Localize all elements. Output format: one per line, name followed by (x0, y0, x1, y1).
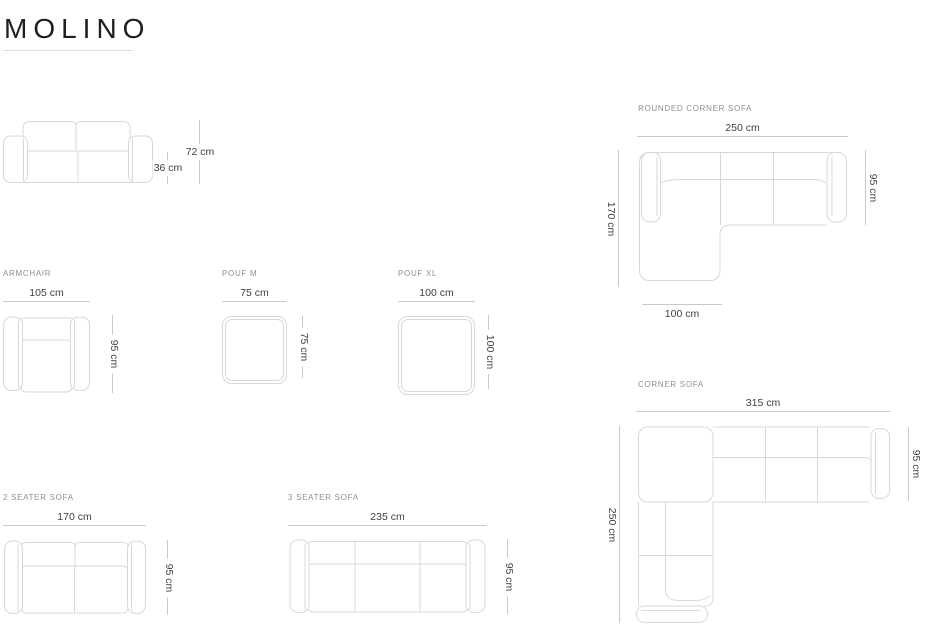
sofa-outline (640, 153, 836, 281)
back-cushion-left (20, 543, 76, 569)
dim-value: 100 cm (398, 287, 475, 299)
pouf-inner-edge (402, 320, 472, 392)
two-seater-drawing (3, 540, 147, 615)
backrest-seam (713, 458, 871, 462)
armrest-right (128, 541, 146, 614)
armrest-left (642, 153, 661, 223)
armrest-bottom (637, 606, 708, 623)
dim-pouf-m-width: 75 cm (222, 287, 287, 302)
dim-line (637, 136, 848, 137)
dim-two-seater-width: 170 cm (3, 511, 146, 526)
armrest-right (871, 429, 890, 499)
dim-value: 235 cm (288, 511, 487, 523)
armrest-left (5, 541, 23, 614)
section-label-corner-sofa: CORNER SOFA (638, 380, 704, 389)
page-title: MOLINO (4, 13, 150, 45)
dim-line (3, 525, 146, 526)
dim-armchair-width: 105 cm (3, 287, 90, 302)
pouf-outer-edge (223, 317, 287, 384)
dim-value: 75 cm (298, 328, 310, 367)
armrest-right (71, 317, 90, 391)
sofa-front-view-drawing (3, 115, 153, 185)
dim-value: 105 cm (3, 287, 90, 299)
dim-value: 36 cm (153, 160, 184, 176)
rounded-corner-sofa-drawing (637, 150, 848, 287)
back-cushion-right (75, 543, 130, 569)
corner-module (639, 427, 714, 502)
backrest-seam (661, 180, 826, 184)
dim-value: 72 cm (185, 144, 216, 160)
dim-value: 170 cm (3, 511, 146, 523)
dim-line (636, 411, 890, 412)
pouf-m-drawing (222, 316, 287, 384)
dim-value: 95 cm (163, 558, 175, 597)
section-label-armchair: ARMCHAIR (3, 269, 51, 278)
back-cushion-right (76, 122, 130, 153)
back-cushion-left (23, 122, 76, 153)
section-label-three-seater: 3 SEATER SOFA (288, 493, 359, 502)
armrest-right (466, 540, 485, 613)
dim-three-seater-width: 235 cm (288, 511, 487, 526)
section-label-two-seater: 2 SEATER SOFA (3, 493, 74, 502)
pouf-outer-edge (399, 317, 475, 395)
dim-value: 75 cm (222, 287, 287, 299)
dim-value: 250 cm (606, 507, 618, 541)
pouf-inner-edge (226, 320, 284, 381)
dim-line (3, 301, 90, 302)
section-label-pouf-xl: POUF XL (398, 269, 437, 278)
dim-rounded-corner-sofa-width: 250 cm (637, 122, 848, 137)
dim-value: 95 cm (108, 335, 120, 374)
armrest-left (4, 317, 23, 391)
dim-value: 100 cm (484, 330, 496, 374)
dim-line (865, 150, 866, 225)
dim-line (222, 301, 287, 302)
dim-value: 250 cm (637, 122, 848, 134)
chaise-back-seam (666, 502, 711, 601)
dim-pouf-xl-width: 100 cm (398, 287, 475, 302)
dim-value: 95 cm (503, 557, 515, 596)
section-label-pouf-m: POUF M (222, 269, 257, 278)
title-underline (3, 50, 133, 51)
dim-line (908, 427, 909, 501)
dim-value: 95 cm (867, 173, 879, 202)
dim-value: 170 cm (605, 201, 617, 235)
three-seater-drawing (289, 539, 486, 614)
dim-corner-sofa-width: 315 cm (636, 397, 890, 412)
dim-value: 100 cm (642, 308, 722, 320)
dim-line (619, 426, 620, 623)
dim-value: 95 cm (910, 450, 922, 479)
dim-line (398, 301, 475, 302)
armrest-left (290, 540, 309, 613)
section-label-rounded-corner-sofa: ROUNDED CORNER SOFA (638, 104, 752, 113)
armrest-right (827, 153, 847, 223)
corner-sofa-drawing (636, 426, 890, 623)
pouf-xl-drawing (398, 316, 475, 395)
dim-line (288, 525, 487, 526)
chaise-right-edge (704, 502, 713, 607)
spec-sheet: { "title": "MOLINO", "colors": { "title"… (0, 0, 930, 630)
seat (308, 564, 468, 612)
back-cushions (306, 542, 470, 568)
armchair-drawing (3, 315, 90, 393)
dim-value: 315 cm (636, 397, 890, 409)
dim-rounded-corner-sofa-chaise-width: 100 cm (642, 304, 722, 320)
dim-line (618, 150, 619, 287)
seat (21, 340, 72, 392)
dim-line (642, 304, 722, 305)
